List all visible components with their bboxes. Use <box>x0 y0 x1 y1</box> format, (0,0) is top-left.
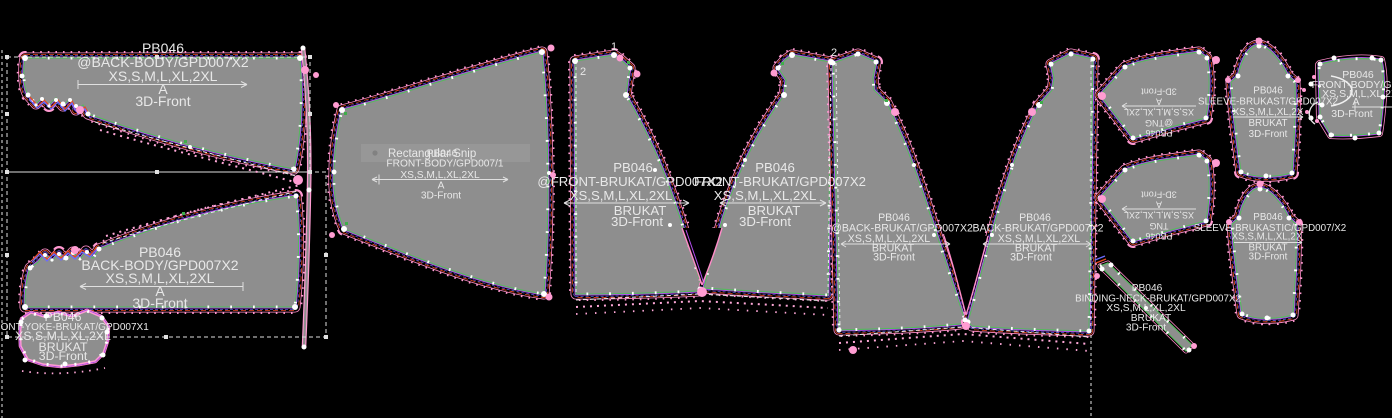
svg-text:3D-Front: 3D-Front <box>1249 252 1288 263</box>
svg-text:3D-Front: 3D-Front <box>739 214 791 229</box>
svg-text:BRUKAT: BRUKAT <box>1248 118 1287 129</box>
svg-text:3D-Front: 3D-Front <box>39 349 88 363</box>
svg-text:2: 2 <box>580 66 586 78</box>
svg-text:3D-Front: 3D-Front <box>1331 108 1373 120</box>
svg-text:XS,S,M,L,XL,2XL: XS,S,M,L,XL,2XL <box>1124 210 1194 220</box>
svg-text:A: A <box>1156 200 1162 210</box>
svg-text:3D-Front: 3D-Front <box>421 191 461 202</box>
svg-text:PB046: PB046 <box>1145 231 1172 241</box>
svg-text:3D-Front: 3D-Front <box>1249 129 1288 140</box>
svg-text:PB046: PB046 <box>755 160 795 175</box>
svg-text:XS,S,M,L,XL,2XL: XS,S,M,L,XL,2XL <box>714 188 817 203</box>
svg-text:3D-Front: 3D-Front <box>132 295 187 311</box>
svg-text:XS,S,M,L,XL,2XL: XS,S,M,L,XL,2XL <box>1124 107 1194 117</box>
svg-text:TNG: TNG <box>1150 221 1169 231</box>
svg-text:FRONT-BODY/GPD007/1: FRONT-BODY/GPD007/1 <box>386 159 504 170</box>
svg-text:PB046: PB046 <box>1145 128 1172 138</box>
svg-text:PB046: PB046 <box>1253 86 1283 97</box>
svg-text:PB046: PB046 <box>1253 212 1283 223</box>
svg-text:1: 1 <box>611 41 617 53</box>
svg-text:PB046: PB046 <box>1132 283 1163 294</box>
svg-text:3D-Front: 3D-Front <box>135 93 190 109</box>
svg-text:3D-Front: 3D-Front <box>1010 252 1052 264</box>
svg-text:3D-Front: 3D-Front <box>1141 190 1177 200</box>
svg-text:FRONT-BRUKAT/GPD007X2: FRONT-BRUKAT/GPD007X2 <box>694 174 866 189</box>
svg-text:PB046: PB046 <box>613 160 653 175</box>
svg-text:@TNG: @TNG <box>1145 118 1173 128</box>
svg-text:3D-Front: 3D-Front <box>1141 87 1177 97</box>
svg-text:3D-Front: 3D-Front <box>873 252 915 264</box>
svg-text:XS,S,M,L,XL,2X: XS,S,M,L,XL,2X <box>1233 107 1304 118</box>
svg-text:XS,S,M,L,XL,2X: XS,S,M,L,XL,2X <box>1232 232 1303 243</box>
svg-text:A: A <box>1352 96 1359 108</box>
svg-text:2: 2 <box>831 47 837 59</box>
svg-text:XS,S,M,L,XL,2XL: XS,S,M,L,XL,2XL <box>570 188 673 203</box>
svg-text:3D-Front: 3D-Front <box>611 214 663 229</box>
svg-text:A: A <box>1156 97 1162 107</box>
svg-text:3D-Front: 3D-Front <box>1126 323 1166 334</box>
